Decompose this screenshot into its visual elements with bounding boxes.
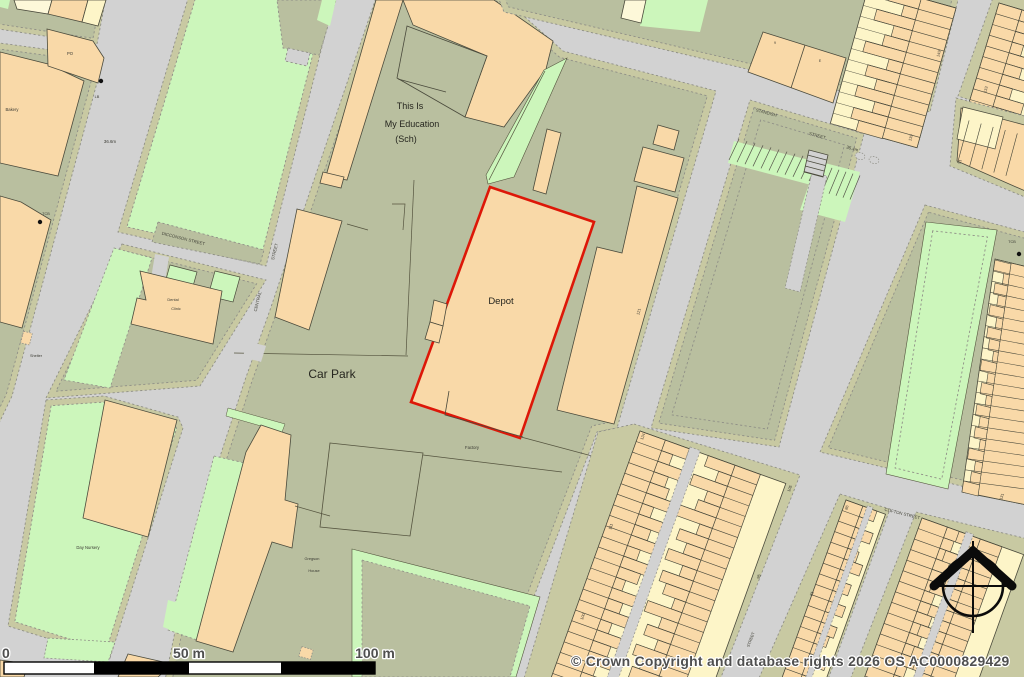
svg-text:This Is: This Is — [397, 101, 424, 111]
svg-text:0: 0 — [2, 645, 10, 661]
svg-text:Shelter: Shelter — [30, 354, 43, 358]
svg-text:© Crown Copyright and database: © Crown Copyright and database rights 20… — [571, 653, 1010, 669]
svg-text:Clinic: Clinic — [171, 306, 181, 311]
svg-text:Dental: Dental — [167, 297, 178, 302]
svg-text:100 m: 100 m — [355, 645, 395, 661]
svg-text:Day Nursery: Day Nursery — [76, 545, 100, 550]
svg-text:Bakery: Bakery — [5, 107, 19, 112]
svg-text:TCB: TCB — [42, 212, 50, 216]
svg-text:Gregson: Gregson — [305, 556, 320, 561]
svg-text:TCB: TCB — [1008, 240, 1016, 244]
svg-text:House: House — [308, 568, 319, 573]
svg-text:(Sch): (Sch) — [395, 134, 417, 144]
svg-text:36.6m: 36.6m — [104, 139, 117, 144]
svg-text:Depot: Depot — [488, 296, 514, 307]
svg-text:9: 9 — [774, 41, 776, 45]
svg-text:LB: LB — [95, 95, 100, 99]
svg-text:Car Park: Car Park — [308, 367, 356, 381]
svg-text:My Education: My Education — [385, 119, 440, 129]
svg-text:Factory: Factory — [465, 445, 480, 450]
svg-text:50 m: 50 m — [173, 645, 205, 661]
svg-text:PO: PO — [67, 51, 74, 56]
